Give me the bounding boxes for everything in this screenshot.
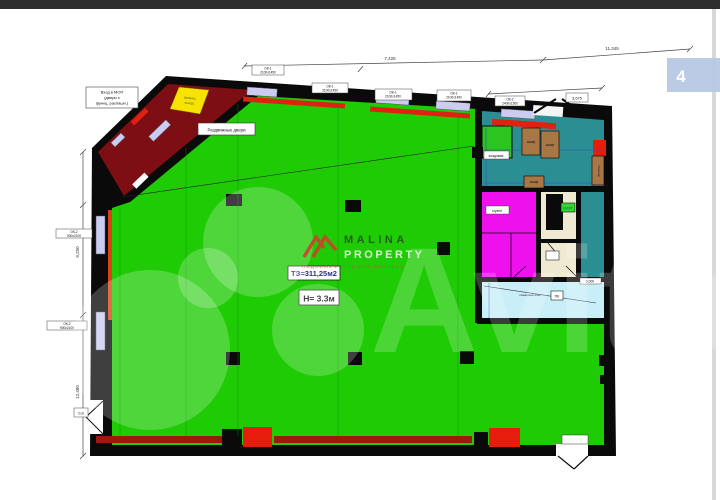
window-spec-2b: 2100х1450 [322,89,338,93]
malina-line2: PROPERTY [344,249,425,261]
malina-tagline: НЕДВИЖИМОСТЬ ДЛЯ БИЗНЕСА [302,264,404,269]
sliding-doors-label: Раздвижные двери [208,128,247,133]
entry-note-l2: (двери с [104,95,120,100]
window-spec-6b: 900х2100 [67,234,81,238]
shelf-label: стеллаж [597,165,601,177]
dim-box-right: 3,675 [572,96,583,101]
wardrobe-label-2: шкаф [546,143,555,147]
dim-top-right: 11,345 [605,46,619,51]
dim-left-upper: 9,250 [75,246,80,258]
window-spec-3b: 2100х1450 [385,95,401,99]
storage-label: кладовая [489,154,504,158]
window-spec-4b: 2100х1450 [446,96,462,100]
floor-plan-drawing: 7,425 11,345 9,250 12,480 [0,0,720,500]
door-width-label: 0,9 [78,411,84,416]
window-spec-7b: 900х2100 [60,326,74,330]
wardrobe-label-3: шкаф [530,180,539,184]
photo-counter-badge [667,58,720,92]
top-dark-strip [0,0,720,9]
malina-line1: MALINA [344,234,408,246]
listing-photo-floor-plan[interactable]: 7,425 11,345 9,250 12,480 [0,0,720,500]
wardrobe-label-1: шкаф [527,140,536,144]
avito-watermark-text: Avito [370,216,720,384]
wc-label: с/узел [492,209,502,213]
entry-note-l3: функц. распашн.) [96,101,129,106]
window-spec-5b: 2400х1500 [502,102,518,106]
window-spec-1b: 2100х1450 [260,71,276,75]
lift-label: ЛИФТ [563,207,573,211]
entry-note-l1: Вход в МОП [101,90,124,95]
dim-top-left: 7,425 [384,56,396,61]
photo-counter-number: 4 [676,67,686,86]
